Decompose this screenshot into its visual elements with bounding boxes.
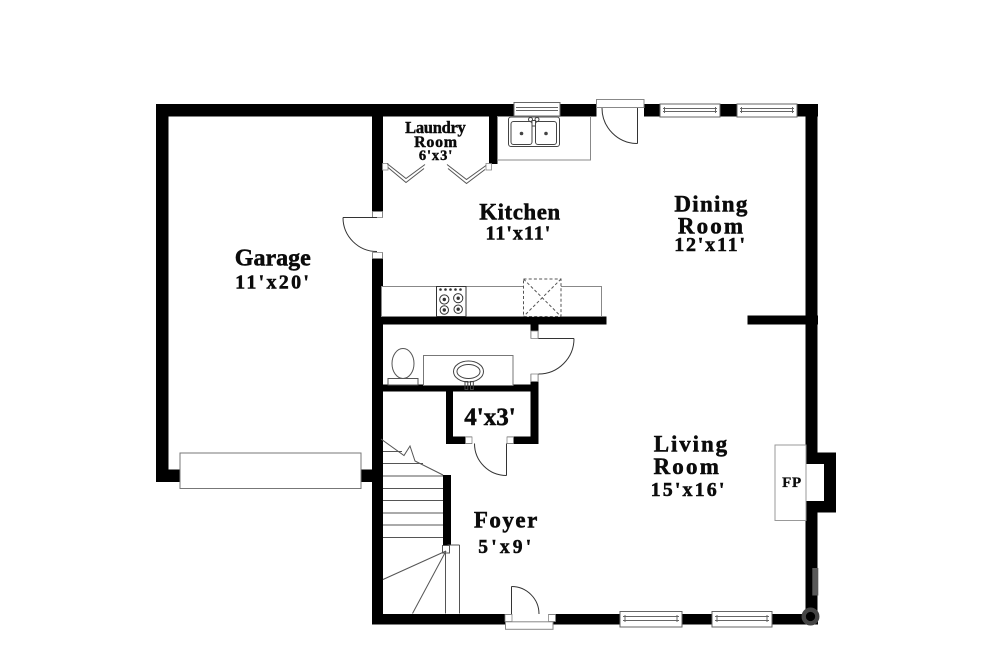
svg-text:6'x3': 6'x3'	[419, 148, 453, 164]
svg-text:5'x9': 5'x9'	[478, 537, 534, 558]
svg-text:Living: Living	[654, 432, 729, 457]
svg-text:FP: FP	[782, 475, 802, 491]
svg-text:12'x11': 12'x11'	[674, 234, 747, 256]
svg-text:11'x11': 11'x11'	[485, 223, 551, 245]
svg-text:Garage: Garage	[235, 246, 311, 272]
svg-text:Foyer: Foyer	[474, 508, 539, 533]
svg-text:Room: Room	[654, 454, 722, 479]
svg-text:4'x3': 4'x3'	[464, 404, 515, 431]
svg-text:11'x20': 11'x20'	[235, 272, 311, 294]
svg-text:15'x16': 15'x16'	[651, 479, 727, 501]
svg-text:Kitchen: Kitchen	[479, 200, 560, 225]
